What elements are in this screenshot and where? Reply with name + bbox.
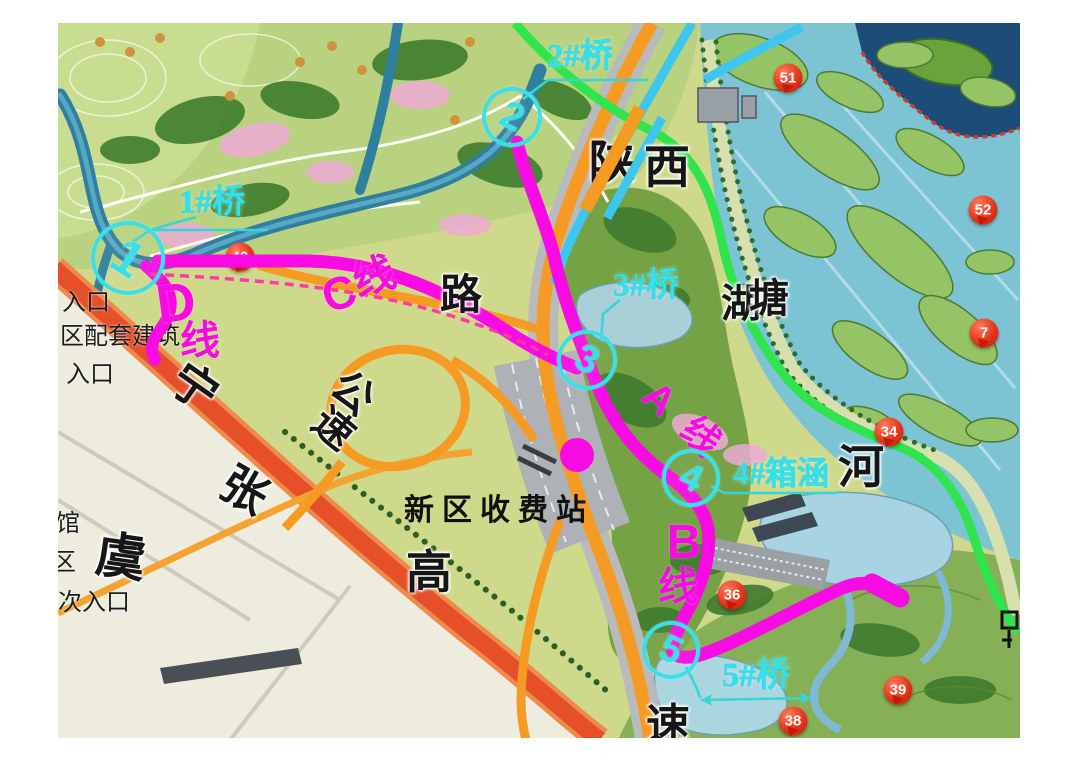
masterplan-map-page: 入口区配套建筑入口馆区次入口陕405152734363938	[0, 0, 1080, 763]
road-name-char: 虞	[93, 529, 149, 585]
bridge-label: 2#桥	[547, 41, 613, 74]
water-name-char: 河	[838, 445, 884, 491]
water-name-char: 塘	[749, 279, 789, 319]
toll-station-label: 新区收费站	[404, 485, 594, 529]
station-circle: 2	[472, 77, 552, 157]
route-line-label: 线	[658, 567, 698, 607]
road-name-char: 张	[213, 460, 276, 523]
route-line-label: B	[667, 519, 702, 567]
station-circle: 5	[632, 611, 709, 688]
bridge-label: 5#桥	[722, 659, 790, 693]
station-circle: 4	[652, 439, 729, 516]
water-name-char: 西	[644, 145, 690, 191]
road-name-char: 宁	[162, 356, 226, 420]
bridge-label: 3#桥	[613, 270, 679, 303]
route-line-label: 线	[180, 321, 220, 361]
route-line-label: A	[635, 374, 683, 423]
road-name-char: 路	[440, 275, 482, 317]
bridge-label: 4#箱涵	[733, 457, 829, 489]
road-name-char: 高	[406, 550, 452, 596]
bridge-label: 1#桥	[179, 187, 245, 220]
label-layer: 宁张虞高速公速路西湖塘河A线B线C线D线1#桥2#桥3#桥4#箱涵5#桥1234…	[58, 23, 1020, 738]
road-name-char: 速	[646, 704, 690, 738]
station-circle: 3	[547, 320, 627, 400]
map-canvas: 入口区配套建筑入口馆区次入口陕405152734363938	[58, 23, 1020, 738]
